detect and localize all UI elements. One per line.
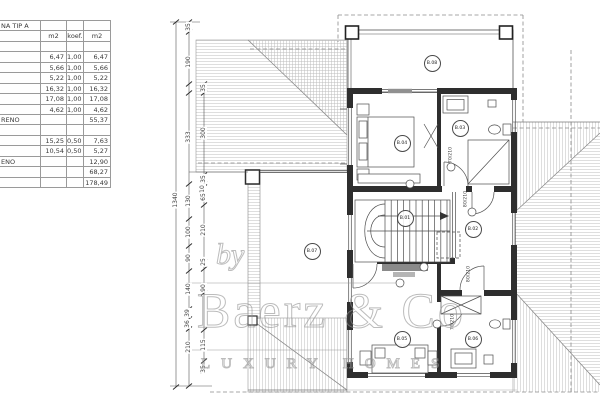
table-cell: [41, 115, 67, 125]
dimension-label: 90: [186, 253, 192, 263]
door-size-label: 70/210: [452, 314, 457, 330]
dimension-label: 210: [201, 223, 207, 236]
table-cell: [0, 125, 41, 135]
room-label-b08: B.08: [424, 55, 441, 72]
table-cell: 1,00: [67, 73, 84, 83]
table-cell: [67, 115, 84, 125]
table-cell: 17,08: [41, 94, 67, 104]
dimension-label: 115: [201, 338, 207, 351]
table-cell: [67, 21, 84, 31]
table-cell: [0, 105, 41, 115]
table-cell: 0,50: [67, 146, 84, 156]
staircase: [355, 192, 460, 277]
table-cell: [41, 157, 67, 167]
table-cell: 15,25: [41, 136, 67, 146]
table-cell: [0, 52, 41, 62]
table-cell: [0, 136, 41, 146]
table-cell: [84, 42, 111, 52]
table-cell: [67, 178, 84, 188]
roof-bottom-left: [248, 318, 347, 392]
table-cell: [0, 42, 41, 52]
table-title-cell: NA TIP A: [0, 21, 41, 31]
table-cell: koef.: [67, 31, 84, 41]
table-cell: 7,63: [84, 136, 111, 146]
dimension-label: 25: [201, 257, 207, 267]
table-cell: 1,00: [67, 94, 84, 104]
dimension-label: 35: [201, 364, 207, 374]
table-cell: [84, 125, 111, 135]
table-cell: [41, 167, 67, 177]
table-cell: [0, 146, 41, 156]
table-cell: 178,49: [84, 178, 111, 188]
table-cell: 16,32: [41, 84, 67, 94]
dimension-label: 65: [201, 192, 207, 202]
dimension-label: 130: [186, 194, 192, 207]
table-cell: [41, 178, 67, 188]
room-label-b07: B.07: [304, 243, 321, 260]
door-size-label: 70/210: [450, 147, 455, 163]
door-size-label: 80/210: [465, 191, 470, 207]
room-label-b02: B.02: [465, 221, 482, 238]
table-cell: RENO: [0, 115, 41, 125]
dimension-label: 100: [186, 225, 192, 238]
door-size-label: 80/210: [468, 266, 473, 282]
table-cell: 4,62: [84, 105, 111, 115]
table-cell: 1,00: [67, 105, 84, 115]
table-cell: 68,27: [84, 167, 111, 177]
roof-left: [196, 40, 347, 172]
table-cell: [41, 42, 67, 52]
table-cell: 1,00: [67, 63, 84, 73]
table-cell: 10,54: [41, 146, 67, 156]
dimension-label: 300: [201, 126, 207, 139]
column: [500, 26, 513, 39]
room-label-b01: B.01: [397, 210, 414, 227]
table-cell: [0, 73, 41, 83]
table-cell: [41, 21, 67, 31]
table-cell: ENO: [0, 157, 41, 167]
room-label-b03: B.03: [452, 120, 469, 137]
table-cell: [41, 125, 67, 135]
dimension-label: 190: [186, 55, 192, 68]
table-cell: 5,66: [41, 63, 67, 73]
table-cell: 5,27: [84, 146, 111, 156]
table-cell: [67, 125, 84, 135]
dimension-label: 35: [201, 83, 207, 93]
table-cell: [0, 63, 41, 73]
table-cell: 5,66: [84, 63, 111, 73]
dimension-label: 210: [186, 340, 192, 353]
table-cell: 5,22: [84, 73, 111, 83]
table-cell: 55,37: [84, 115, 111, 125]
terrace-b07: [246, 170, 348, 325]
table-cell: 6,47: [84, 52, 111, 62]
table-cell: 0,50: [67, 136, 84, 146]
room-label-b06: B.06: [465, 331, 482, 348]
table-cell: 17,08: [84, 94, 111, 104]
room-label-b05: B.05: [394, 331, 411, 348]
table-cell: 16,32: [84, 84, 111, 94]
table-cell: [67, 167, 84, 177]
table-cell: 1,00: [67, 52, 84, 62]
dimension-label: 36: [185, 319, 191, 329]
dimension-label: 140: [186, 282, 192, 295]
table-cell: m2: [41, 31, 67, 41]
table-cell: 4,62: [41, 105, 67, 115]
room-label-b04: B.04: [394, 135, 411, 152]
table-cell: [0, 178, 41, 188]
table-cell: [67, 157, 84, 167]
table-cell: 12,90: [84, 157, 111, 167]
table-cell: 1,00: [67, 84, 84, 94]
roof-right: [513, 122, 600, 392]
dimension-label: 333: [186, 130, 192, 143]
column: [346, 26, 359, 39]
floorplan-sheet: NA TIP Am2koef.m26,471,006,475,661,005,6…: [0, 0, 600, 400]
table-cell: 6,47: [41, 52, 67, 62]
table-cell: [0, 31, 41, 41]
table-cell: [84, 21, 111, 31]
table-cell: [0, 94, 41, 104]
table-cell: [67, 42, 84, 52]
table-cell: m2: [84, 31, 111, 41]
dimension-label: 90: [201, 283, 207, 293]
table-cell: 5,22: [41, 73, 67, 83]
dimension-label: 1340: [173, 191, 179, 208]
table-cell: [0, 167, 41, 177]
dimension-label: 35: [186, 22, 192, 32]
area-table: NA TIP Am2koef.m26,471,006,475,661,005,6…: [0, 20, 111, 188]
dimension-label: 39: [185, 308, 191, 318]
table-cell: [0, 84, 41, 94]
dimension-label: 35: [201, 174, 207, 184]
